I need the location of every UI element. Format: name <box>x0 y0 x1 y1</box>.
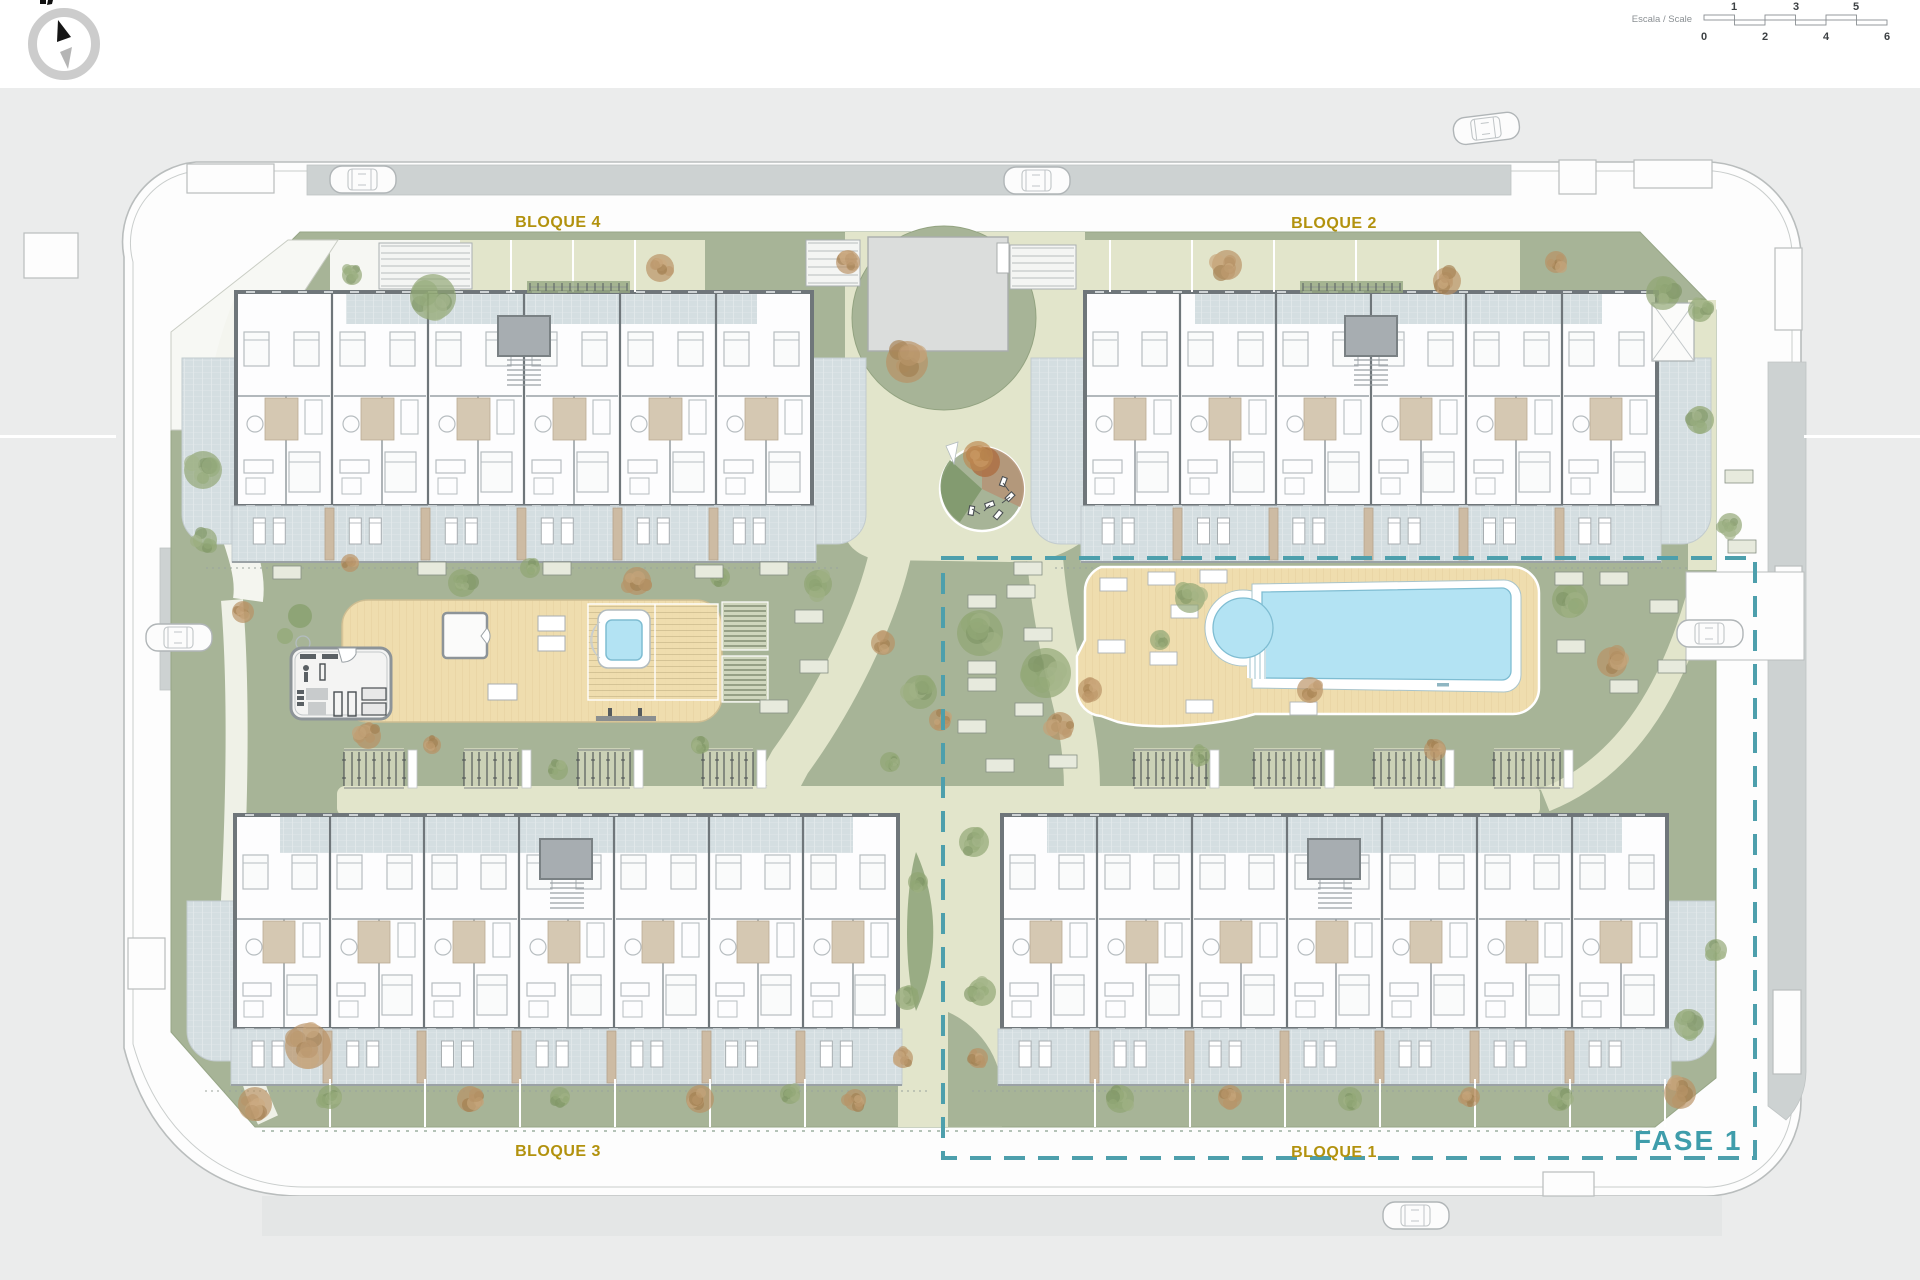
svg-text:BLOQUE 3: BLOQUE 3 <box>515 1143 601 1160</box>
svg-text:3: 3 <box>1793 1 1799 13</box>
svg-text:BLOQUE 4: BLOQUE 4 <box>515 214 601 231</box>
svg-text:Escala / Scale: Escala / Scale <box>1632 14 1692 25</box>
svg-text:6: 6 <box>1884 31 1890 43</box>
svg-text:FASE 1: FASE 1 <box>1634 1125 1742 1156</box>
svg-text:BLOQUE 1: BLOQUE 1 <box>1291 1144 1377 1161</box>
svg-text:BLOQUE 2: BLOQUE 2 <box>1291 215 1377 232</box>
svg-text:0: 0 <box>1701 31 1707 43</box>
svg-text:2: 2 <box>1762 31 1768 43</box>
svg-text:5: 5 <box>1853 1 1859 13</box>
svg-text:4: 4 <box>1823 31 1830 43</box>
svg-text:1: 1 <box>1731 1 1737 13</box>
